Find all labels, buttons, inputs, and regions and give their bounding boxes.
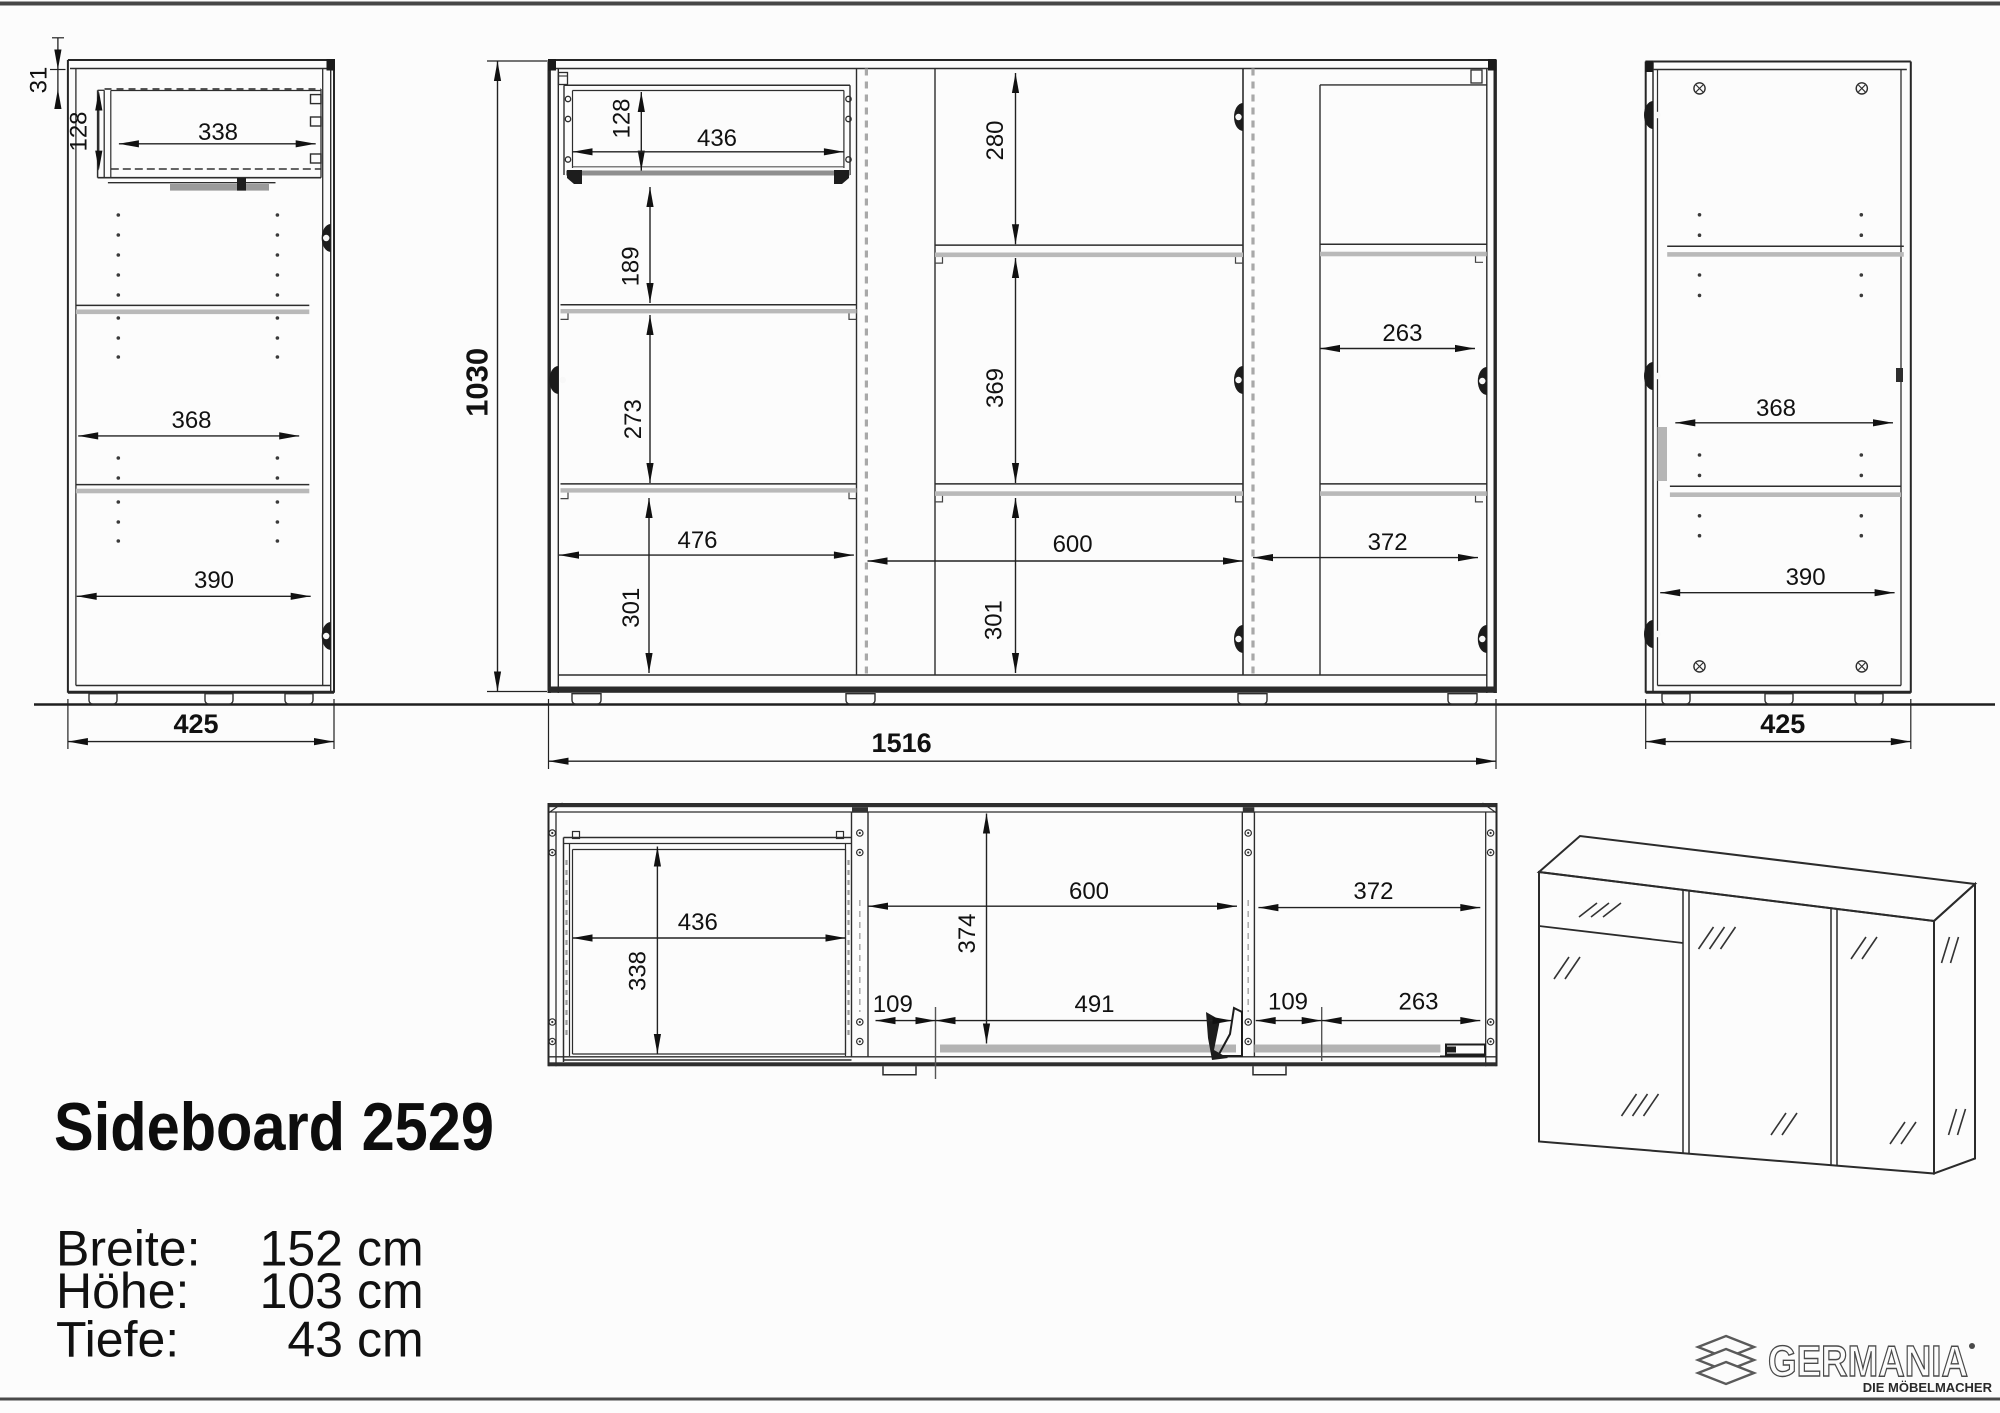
svg-text:109: 109 bbox=[1268, 989, 1308, 1016]
svg-text:cm: cm bbox=[357, 1312, 424, 1368]
svg-text:280: 280 bbox=[982, 120, 1009, 160]
svg-text:372: 372 bbox=[1353, 878, 1393, 905]
svg-text:390: 390 bbox=[1786, 564, 1826, 591]
svg-text:425: 425 bbox=[173, 709, 218, 739]
svg-text:301: 301 bbox=[618, 588, 645, 628]
svg-text:273: 273 bbox=[620, 399, 647, 439]
svg-text:436: 436 bbox=[697, 125, 737, 152]
svg-text:Sideboard 2529: Sideboard 2529 bbox=[54, 1089, 494, 1165]
svg-text:368: 368 bbox=[171, 407, 211, 434]
svg-text:1516: 1516 bbox=[872, 728, 932, 758]
svg-text:491: 491 bbox=[1074, 991, 1114, 1018]
svg-text:263: 263 bbox=[1398, 989, 1438, 1016]
svg-text:301: 301 bbox=[981, 600, 1008, 640]
svg-text:189: 189 bbox=[618, 246, 645, 286]
svg-text:436: 436 bbox=[678, 909, 718, 936]
svg-text:31: 31 bbox=[26, 67, 53, 94]
svg-text:1030: 1030 bbox=[460, 348, 495, 417]
svg-text:369: 369 bbox=[982, 368, 1009, 408]
svg-text:43: 43 bbox=[287, 1312, 343, 1368]
svg-text:368: 368 bbox=[1756, 395, 1796, 422]
svg-text:338: 338 bbox=[624, 951, 651, 991]
svg-text:338: 338 bbox=[198, 119, 238, 146]
svg-text:DIE MÖBELMACHER: DIE MÖBELMACHER bbox=[1863, 1380, 1993, 1395]
svg-text:128: 128 bbox=[608, 98, 635, 138]
svg-text:390: 390 bbox=[194, 567, 234, 594]
svg-text:425: 425 bbox=[1760, 709, 1805, 739]
svg-text:109: 109 bbox=[873, 991, 913, 1018]
svg-text:600: 600 bbox=[1053, 531, 1093, 558]
svg-text:128: 128 bbox=[66, 111, 93, 151]
svg-text:372: 372 bbox=[1368, 529, 1408, 556]
svg-text:Tiefe:: Tiefe: bbox=[56, 1312, 179, 1368]
svg-text:600: 600 bbox=[1069, 878, 1109, 905]
svg-text:263: 263 bbox=[1382, 320, 1422, 347]
svg-text:476: 476 bbox=[677, 527, 717, 554]
svg-text:374: 374 bbox=[954, 913, 981, 953]
svg-text:GERMANIA: GERMANIA bbox=[1768, 1337, 1968, 1386]
